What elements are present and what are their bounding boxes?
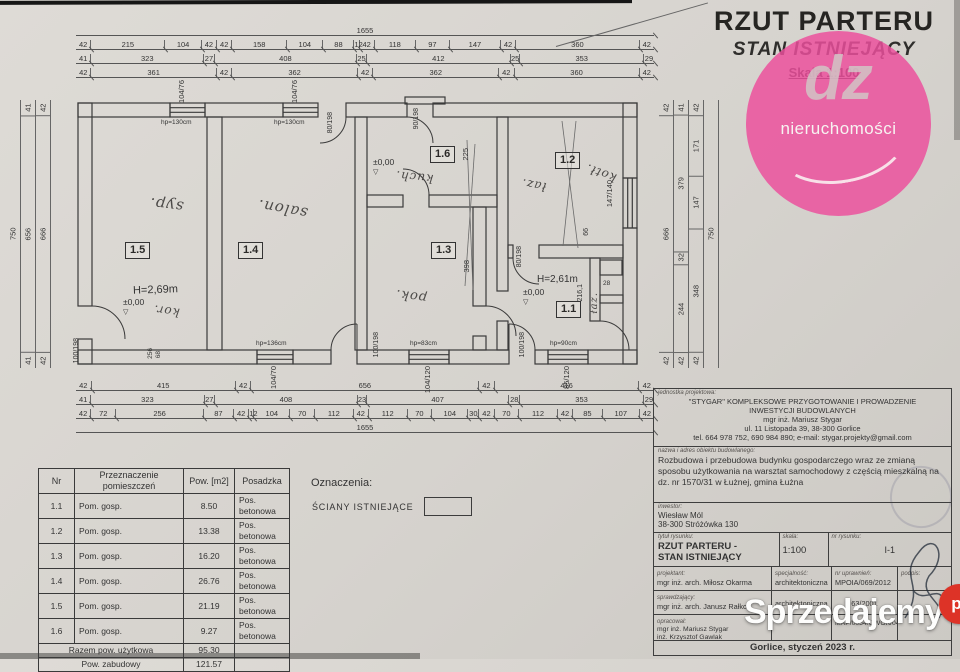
scale-cell-label: skala: bbox=[783, 534, 825, 541]
door-size-label: 80/198 bbox=[516, 246, 523, 267]
dim-value: 27 bbox=[204, 54, 214, 63]
col-header-posadzka: Posadzka bbox=[235, 469, 290, 494]
scan-edge-right bbox=[954, 0, 960, 140]
level-mark-1-6: ±0,00▽ bbox=[373, 158, 394, 177]
room-number-1-6: 1.6 bbox=[430, 146, 455, 163]
scale-cell: skala: 1:100 bbox=[780, 533, 829, 566]
level-triangle-icon: ▽ bbox=[373, 169, 378, 176]
agency-logo: dz nieruchomości bbox=[746, 31, 931, 216]
table-header-row: Nr Przeznaczenie pomieszczeń Pow. [m2] P… bbox=[39, 469, 290, 494]
title-block-object: nazwa i adres obiektu budowlanego: Rozbu… bbox=[654, 447, 951, 503]
dim-value: 407 bbox=[367, 395, 510, 404]
dim-value: 412 bbox=[367, 54, 511, 63]
dim-value: 42 bbox=[236, 381, 252, 390]
table-row: 1.3Pom. gosp.16.20Pos. betonowa bbox=[39, 544, 290, 569]
table-cell: Pom. gosp. bbox=[75, 619, 184, 644]
dim-value: 666 bbox=[36, 115, 50, 352]
col-header-nr: Nr bbox=[39, 469, 75, 494]
dim-value: 118 bbox=[375, 40, 416, 49]
dim-value: 30 bbox=[468, 409, 479, 418]
object-description: Rozbudowa i przebudowa budynku gospodarc… bbox=[658, 455, 947, 488]
dim-value: 42 bbox=[36, 100, 50, 115]
designer-name: mgr inż. arch. Miłosz Okarma bbox=[657, 578, 768, 587]
room-number-1-2: 1.2 bbox=[555, 152, 580, 169]
dim-value: 750 bbox=[704, 100, 718, 368]
dim-value: 750 bbox=[6, 100, 20, 368]
designer-speciality: architektoniczna bbox=[775, 578, 828, 587]
room-number-1-3: 1.3 bbox=[431, 242, 456, 259]
dim-value: 87 bbox=[204, 409, 234, 418]
dim-value: 85 bbox=[573, 409, 603, 418]
design-unit-line3: mgr inż. Mariusz Stygar bbox=[658, 415, 947, 424]
dim-value: 41 bbox=[21, 100, 35, 115]
dim-value: 256 bbox=[116, 409, 203, 418]
table-cell: 1.3 bbox=[39, 544, 75, 569]
dim-value: 97 bbox=[416, 40, 450, 49]
dim-value: 408 bbox=[215, 54, 358, 63]
inner-dim-398: 398 bbox=[462, 260, 471, 273]
dim-value: 42 bbox=[76, 409, 91, 418]
dim-value: 70 bbox=[408, 409, 433, 418]
dim-value: 42 bbox=[674, 352, 688, 368]
dim-value: 41 bbox=[674, 100, 688, 115]
dim-value: 42 bbox=[479, 409, 494, 418]
dim-value: 353 bbox=[520, 395, 644, 404]
dim-chain-left: 750 4165641 4266642 bbox=[6, 100, 51, 368]
dim-value: 42 bbox=[659, 100, 673, 115]
window-sill-label: hp=83cm bbox=[410, 340, 437, 347]
dim-chain-right: 4266642 413793224442 4217114734842 750 bbox=[659, 100, 719, 368]
window-sill-label: hp=130cm bbox=[161, 119, 192, 126]
dim-value: 666 bbox=[659, 115, 673, 352]
dim-value: 158 bbox=[232, 40, 287, 49]
scanned-floor-plan-sheet: { "header": { "title": "RZUT PARTERU", "… bbox=[0, 0, 960, 659]
height-note-1-1: H=2,61m bbox=[537, 274, 578, 285]
legend-title: Oznaczenia: bbox=[311, 477, 372, 489]
dim-value: 27 bbox=[205, 395, 215, 404]
dim-value: 104 bbox=[287, 40, 323, 49]
window-size-label: 104/76 bbox=[290, 80, 299, 103]
dim-value: 107 bbox=[603, 409, 640, 418]
legend-existing-walls-label: ŚCIANY ISTNIEJĄCE bbox=[312, 502, 413, 512]
inner-dim-256: 256 bbox=[147, 348, 154, 359]
investor-name: Wiesław Mól bbox=[658, 511, 947, 520]
dim-value: 323 bbox=[91, 54, 204, 63]
dim-value: 112 bbox=[315, 409, 354, 418]
dim-value: 42 bbox=[76, 381, 92, 390]
height-note-1-5: H=2,69m bbox=[133, 283, 178, 297]
total-empty-cell bbox=[235, 644, 290, 658]
table-row: 1.6Pom. gosp.9.27Pos. betonowa bbox=[39, 619, 290, 644]
dim-value: 72 bbox=[91, 409, 116, 418]
design-unit-label: jednostka projektowa: bbox=[658, 390, 947, 397]
table-cell: Pom. gosp. bbox=[75, 494, 184, 519]
dim-value: 42 bbox=[354, 409, 369, 418]
level-triangle-icon: ▽ bbox=[123, 309, 128, 316]
watermark: Sprzedajemy pl bbox=[744, 592, 960, 632]
window-sill-label: hp=136cm bbox=[256, 340, 287, 347]
door-size-label: 80/198 bbox=[327, 112, 334, 133]
dim-value: 147 bbox=[450, 40, 501, 49]
table-cell: 13.38 bbox=[184, 519, 235, 544]
total-label: Razem pow. użytkowa bbox=[39, 644, 184, 658]
author-name-2: inż. Krzysztof Gawlak bbox=[657, 634, 768, 641]
watermark-text: Sprzedajemy bbox=[744, 592, 943, 632]
dim-value: 70 bbox=[495, 409, 520, 418]
table-row: 1.2Pom. gosp.13.38Pos. betonowa bbox=[39, 519, 290, 544]
door-size-label: 90/198 bbox=[413, 108, 420, 129]
dim-value: 353 bbox=[520, 54, 643, 63]
title-block-footer: Gorlice, styczeń 2023 r. bbox=[654, 641, 951, 656]
table-cell: Pom. gosp. bbox=[75, 519, 184, 544]
inner-dim-68: 68 bbox=[155, 351, 162, 358]
scale-cell-value: 1:100 bbox=[783, 545, 825, 556]
table-cell: Pos. betonowa bbox=[235, 494, 290, 519]
room-number-1-4: 1.4 bbox=[238, 242, 263, 259]
table-cell: 1.4 bbox=[39, 569, 75, 594]
dim-value: 29 bbox=[644, 54, 654, 63]
table-cell: 1.1 bbox=[39, 494, 75, 519]
table-cell: Pos. betonowa bbox=[235, 544, 290, 569]
dim-value: 1655 bbox=[76, 26, 654, 35]
table-cell: 16.20 bbox=[184, 544, 235, 569]
table-cell: 1.2 bbox=[39, 519, 75, 544]
inner-dim-225: 225 bbox=[461, 148, 470, 161]
design-unit-line5: tel. 664 978 752, 690 984 890; e-mail: s… bbox=[658, 433, 947, 442]
level-mark-1-1: ±0,00▽ bbox=[523, 288, 544, 307]
table-cell: 26.76 bbox=[184, 569, 235, 594]
dim-value: 408 bbox=[215, 395, 358, 404]
floor-plan: 1.5 1.4 1.6 1.3 1.2 1.1 syp. salon. kuch… bbox=[73, 96, 658, 381]
dim-value: 25 bbox=[357, 54, 367, 63]
dim-value: 171 bbox=[689, 115, 703, 176]
dim-value: 104 bbox=[165, 40, 201, 49]
dim-value: 70 bbox=[290, 409, 315, 418]
drawing-title-line1: RZUT PARTERU - bbox=[658, 541, 775, 552]
dim-value: 215 bbox=[91, 40, 165, 49]
table-cell: 1.5 bbox=[39, 594, 75, 619]
built-value: 121.57 bbox=[184, 658, 235, 672]
dim-value: 42 bbox=[76, 40, 91, 49]
dim-value: 656 bbox=[251, 381, 479, 390]
dim-value: 42 bbox=[689, 100, 703, 115]
level-triangle-icon: ▽ bbox=[523, 299, 528, 306]
author-role-label: opracował: bbox=[657, 619, 686, 625]
handwritten-label-laz2: łaz. bbox=[589, 292, 600, 314]
design-unit-line4: ul. 11 Listopada 39, 38-300 Gorlice bbox=[658, 424, 947, 433]
dim-value: 42 bbox=[358, 68, 373, 77]
dim-value: 360 bbox=[515, 68, 640, 77]
table-built-row: Pow. zabudowy 121.57 bbox=[39, 658, 290, 672]
dim-value: 42 bbox=[36, 352, 50, 368]
dim-value: 112 bbox=[369, 409, 408, 418]
dim-value: 42 bbox=[217, 68, 232, 77]
room-number-1-1: 1.1 bbox=[556, 301, 581, 318]
dim-value: 42 bbox=[360, 40, 375, 49]
floor-plan-linework bbox=[73, 96, 658, 381]
investor-label: inwestor: bbox=[658, 504, 947, 511]
dim-value: 104 bbox=[432, 409, 468, 418]
table-cell: 1.6 bbox=[39, 619, 75, 644]
dim-value: 362 bbox=[232, 68, 358, 77]
dim-value: 112 bbox=[519, 409, 558, 418]
window-size-label: 104/120 bbox=[423, 366, 432, 393]
design-unit-line2: INWESTYCJI BUDOWLANYCH bbox=[658, 406, 947, 415]
title-block-design-unit: jednostka projektowa: "STYGAR" KOMPLEKSO… bbox=[654, 389, 951, 447]
designer-cert: MPOIA/069/2012 bbox=[835, 578, 894, 587]
window-size-label: 147/140 bbox=[605, 180, 614, 207]
dim-value: 361 bbox=[91, 68, 216, 77]
table-cell: Pom. gosp. bbox=[75, 569, 184, 594]
dim-value: 32 bbox=[674, 251, 688, 263]
dim-value: 379 bbox=[674, 115, 688, 252]
window-size-label: 104/76 bbox=[177, 80, 186, 103]
dim-value: 42 bbox=[234, 409, 249, 418]
window-size-label: 104/70 bbox=[269, 366, 278, 389]
door-size-label: 100/198 bbox=[519, 332, 526, 357]
object-label: nazwa i adres obiektu budowlanego: bbox=[658, 448, 947, 455]
drawing-title-line2: STAN ISTNIEJĄCY bbox=[658, 552, 775, 563]
table-row: 1.1Pom. gosp.8.50Pos. betonowa bbox=[39, 494, 290, 519]
dim-value: 42 bbox=[499, 68, 514, 77]
window-size-label: 85/120 bbox=[562, 366, 571, 389]
dim-value: 42 bbox=[558, 409, 573, 418]
dim-value: 323 bbox=[91, 395, 204, 404]
dim-value: 42 bbox=[202, 40, 217, 49]
level-mark-1-5: ±0,00▽ bbox=[123, 298, 144, 317]
table-cell: 21.19 bbox=[184, 594, 235, 619]
dim-value: 42 bbox=[639, 381, 654, 390]
dim-value: 1655 bbox=[76, 423, 654, 432]
dim-value: 42 bbox=[217, 40, 232, 49]
dim-value: 25 bbox=[511, 54, 521, 63]
total-value: 95.30 bbox=[184, 644, 235, 658]
dim-value: 23 bbox=[358, 395, 367, 404]
legend-existing-wall-symbol bbox=[424, 497, 472, 516]
table-cell: Pos. betonowa bbox=[235, 619, 290, 644]
speciality-label: specjalność: bbox=[775, 571, 808, 577]
table-cell: 8.50 bbox=[184, 494, 235, 519]
table-cell: Pom. gosp. bbox=[75, 544, 184, 569]
door-size-label: 100/198 bbox=[373, 332, 380, 357]
dim-value: 41 bbox=[76, 54, 91, 63]
dim-value: 104 bbox=[254, 409, 290, 418]
drawing-title-cell: tytuł rysunku: RZUT PARTERU - STAN ISTNI… bbox=[654, 533, 780, 566]
col-header-pow: Pow. [m2] bbox=[184, 469, 235, 494]
dim-value: 42 bbox=[659, 352, 673, 368]
window-sill-label: hp=90cm bbox=[550, 340, 577, 347]
dim-value: 360 bbox=[516, 40, 639, 49]
room-number-1-5: 1.5 bbox=[125, 242, 150, 259]
built-empty-cell bbox=[235, 658, 290, 672]
table-row: 1.4Pom. gosp.26.76Pos. betonowa bbox=[39, 569, 290, 594]
inner-dim-28: 28 bbox=[603, 280, 610, 287]
dim-value: 42 bbox=[640, 68, 654, 77]
table-cell: Pom. gosp. bbox=[75, 594, 184, 619]
dim-value: 42 bbox=[479, 381, 495, 390]
built-label: Pow. zabudowy bbox=[39, 658, 184, 672]
dim-value: 147 bbox=[689, 176, 703, 229]
table-cell: Pos. betonowa bbox=[235, 569, 290, 594]
door-size-label: 100/198 bbox=[73, 338, 80, 363]
table-row: 1.5Pom. gosp.21.19Pos. betonowa bbox=[39, 594, 290, 619]
dim-value: 42 bbox=[76, 68, 91, 77]
dim-value: 244 bbox=[674, 264, 688, 352]
table-total-row: Razem pow. użytkowa 95.30 bbox=[39, 644, 290, 658]
table-cell: Pos. betonowa bbox=[235, 594, 290, 619]
inner-dim-216: 216,1 bbox=[577, 284, 584, 302]
table-cell: 9.27 bbox=[184, 619, 235, 644]
table-cell: Pos. betonowa bbox=[235, 519, 290, 544]
dim-chain-top: 1655 42215104424215810488124211897147423… bbox=[76, 22, 654, 78]
designer-role-label: projektant: bbox=[657, 571, 685, 577]
dim-value: 415 bbox=[92, 381, 236, 390]
dim-value: 656 bbox=[21, 115, 35, 352]
dim-value: 42 bbox=[640, 409, 654, 418]
dim-value: 348 bbox=[689, 229, 703, 353]
dim-value: 42 bbox=[501, 40, 516, 49]
dim-value: 42 bbox=[689, 352, 703, 368]
dim-value: 41 bbox=[76, 395, 91, 404]
dim-value: 362 bbox=[373, 68, 499, 77]
scan-edge-top bbox=[0, 0, 632, 5]
inner-dim-66: 66 bbox=[583, 228, 590, 236]
dim-value: 41 bbox=[21, 352, 35, 368]
drawing-title-label: tytuł rysunku: bbox=[658, 534, 775, 541]
design-unit-line1: "STYGAR" KOMPLEKSOWE PRZYGOTOWANIE I PRO… bbox=[658, 397, 947, 406]
cert-label: nr uprawnień: bbox=[835, 571, 871, 577]
room-table: Nr Przeznaczenie pomieszczeń Pow. [m2] P… bbox=[38, 468, 290, 672]
dim-value: 42 bbox=[640, 40, 654, 49]
dim-value: 88 bbox=[323, 40, 354, 49]
col-header-przeznaczenie: Przeznaczenie pomieszczeń bbox=[75, 469, 184, 494]
window-sill-label: hp=130cm bbox=[274, 119, 305, 126]
dim-value: 28 bbox=[509, 395, 520, 404]
checker-role-label: sprawdzający: bbox=[657, 595, 695, 601]
